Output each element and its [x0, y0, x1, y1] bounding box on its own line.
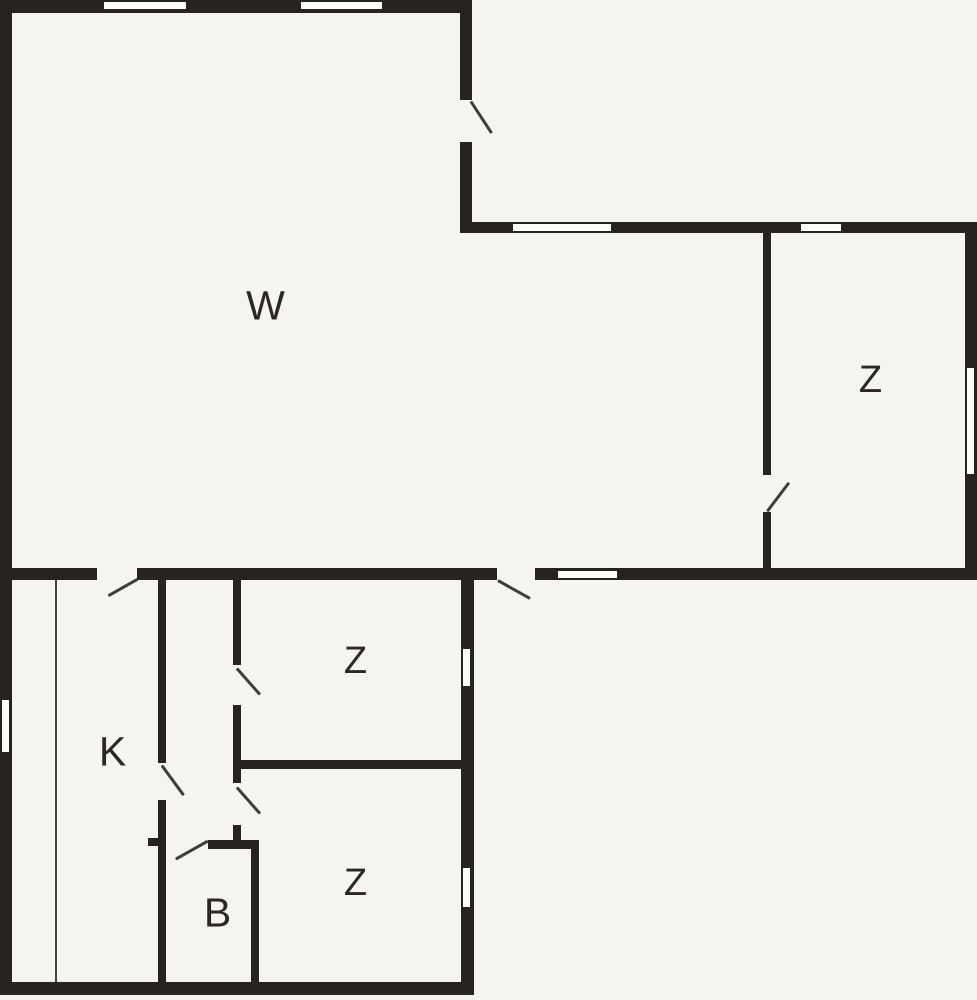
- z-right-door-swing: [766, 481, 790, 512]
- k-door-swing: [161, 764, 185, 795]
- k-partition-upper: [158, 580, 166, 763]
- z-right-partition-lower: [763, 512, 771, 568]
- lower-wing-right-wall: [461, 580, 474, 995]
- window-lower-right-2: [462, 867, 471, 908]
- top-exterior-wall: [0, 0, 472, 13]
- k-closet-line: [55, 580, 57, 982]
- k-b-partition-lower: [158, 800, 166, 985]
- hall-partition-bottom: [233, 825, 241, 840]
- room-label-z-room-upper: Z: [344, 642, 368, 680]
- room-label-z-room-right: Z: [859, 361, 883, 399]
- room-label-z-room-lower: Z: [344, 864, 368, 902]
- bottom-exterior-wall: [0, 982, 474, 995]
- left-exterior-wall: [0, 0, 12, 995]
- room-label-w-room: W: [246, 286, 286, 327]
- window-lower-right-1: [462, 648, 471, 687]
- window-left: [1, 699, 10, 753]
- south-wall-seg-3: [460, 568, 497, 580]
- window-north-2: [800, 223, 842, 232]
- south-wall-seg-1: [12, 568, 97, 580]
- window-top-2: [300, 1, 383, 10]
- b-right-wall: [251, 840, 259, 985]
- w-to-k-door-swing: [107, 578, 138, 597]
- z-upper-door-swing: [236, 667, 261, 695]
- entry-door-swing: [470, 100, 493, 133]
- window-top-1: [103, 1, 187, 10]
- south-exterior-door-swing: [497, 579, 530, 599]
- z-right-partition-upper: [763, 233, 771, 475]
- hall-partition-top: [233, 580, 241, 665]
- z-divider-wall: [241, 760, 461, 769]
- south-wall-seg-2: [137, 568, 460, 580]
- b-door-swing: [175, 840, 208, 860]
- floor-plan-canvas: WZZZKB: [0, 0, 977, 1000]
- room-label-k-room: K: [99, 732, 127, 773]
- window-east: [966, 367, 975, 475]
- window-north-1: [512, 223, 612, 232]
- window-south: [557, 570, 618, 579]
- hall-partition-mid: [233, 705, 241, 783]
- room-label-b-room: B: [204, 893, 232, 934]
- z-lower-door-swing: [236, 786, 261, 814]
- entry-wall-below-door: [460, 142, 472, 233]
- entry-wall-above-door: [460, 0, 472, 100]
- b-top-wall-stub: [148, 838, 158, 846]
